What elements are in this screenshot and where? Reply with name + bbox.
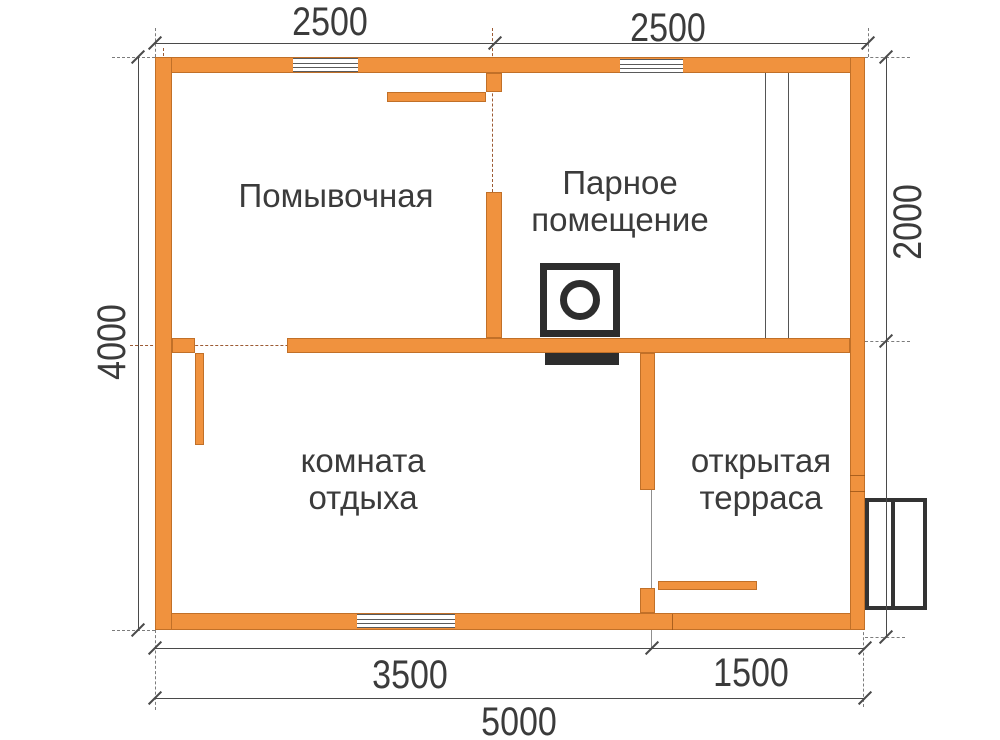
room-label-terrace: открытая терраса	[651, 442, 871, 516]
room-label-line: отдыха	[253, 479, 473, 516]
middle-wall-stub	[172, 338, 195, 353]
dim-label-left: 4000	[92, 257, 132, 427]
terrace-partition-bottom-stub	[640, 588, 655, 613]
terrace-steps-divider	[891, 502, 895, 606]
dim-label-top-right: 2500	[583, 8, 753, 48]
dim-label-top-left: 2500	[245, 2, 415, 42]
stove-symbol	[540, 263, 620, 337]
outer-wall-top	[155, 57, 865, 73]
extension-bottom-right	[863, 627, 864, 707]
dim-label-bottom-terrace: 1500	[666, 653, 836, 693]
room-label-rest-room: комната отдыха	[253, 442, 473, 516]
dimension-line-bottom-2	[155, 698, 865, 699]
room-label-line: Парное	[510, 164, 730, 201]
window-steam-room	[620, 59, 683, 73]
steam-partition-lower	[486, 192, 502, 338]
dim-label-bottom-rest: 3500	[325, 655, 495, 695]
room-label-line: открытая	[651, 442, 871, 479]
dimension-line-top	[155, 43, 868, 44]
outer-wall-right	[850, 57, 865, 630]
room-label-line: помещение	[510, 201, 730, 238]
outer-wall-bottom	[155, 613, 865, 630]
steam-partition-top-stub	[486, 73, 502, 92]
outer-wall-left	[155, 57, 172, 630]
dimension-line-bottom-1	[155, 648, 865, 649]
steam-bench-line-1	[765, 73, 766, 338]
dimension-line-right	[886, 57, 887, 637]
extension-top-left	[112, 57, 155, 58]
room-label-line: терраса	[651, 479, 871, 516]
door-leaf-rest-room	[195, 353, 204, 445]
dim-label-right: 2000	[888, 137, 928, 307]
dimension-line-left	[138, 57, 139, 630]
door-leaf-steam-room	[387, 92, 486, 102]
window-rest-room	[357, 614, 455, 628]
stove-hearth	[545, 353, 619, 365]
room-label-line: Помывочная	[226, 177, 446, 214]
extension-right-middle	[865, 341, 910, 342]
room-label-line: комната	[253, 442, 473, 479]
room-label-washroom: Помывочная	[226, 177, 446, 214]
door-leaf-terrace	[658, 581, 757, 590]
floor-plan: 2500 2500 4000 2000 3500 1500 5000 Помыв…	[0, 0, 1000, 740]
steam-bench-line-2	[788, 73, 789, 338]
extension-right-top	[865, 57, 910, 58]
dim-label-bottom-total: 5000	[434, 702, 604, 740]
stove-circle-icon	[560, 280, 600, 320]
extension-bottom-left	[112, 630, 155, 631]
bottom-wall-seam	[672, 614, 673, 630]
middle-wall-main	[287, 338, 850, 353]
terrace-steps	[865, 498, 927, 610]
window-washroom	[293, 58, 358, 72]
room-label-steam-room: Парное помещение	[510, 164, 730, 238]
